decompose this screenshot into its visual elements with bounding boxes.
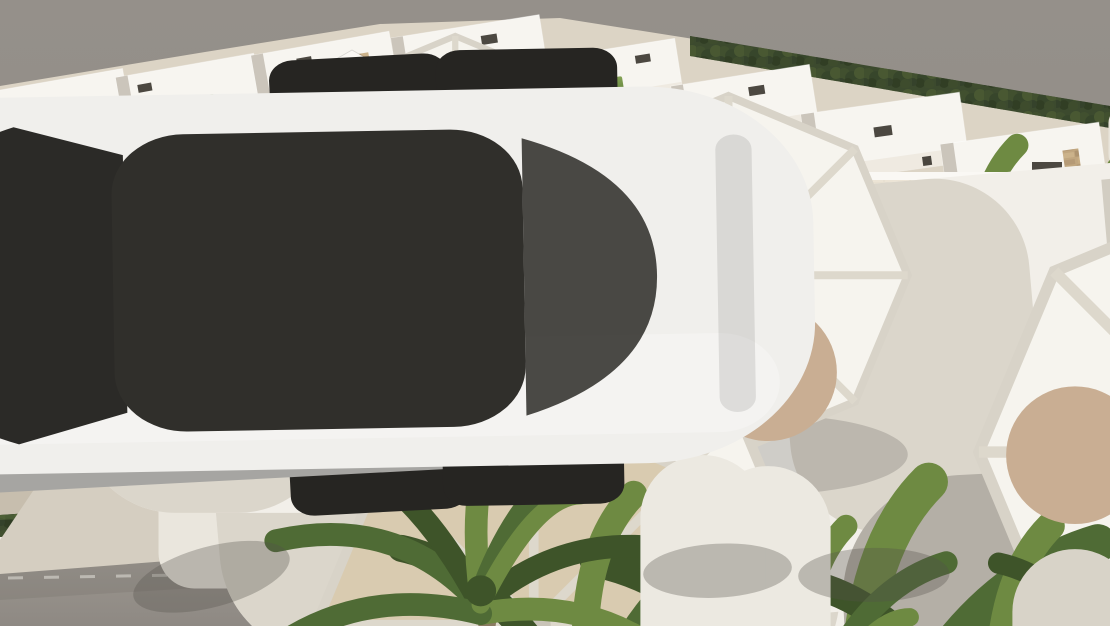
aerial-render-canvas bbox=[0, 0, 1110, 626]
render-figure bbox=[0, 0, 1110, 626]
architectural-render-screenshot bbox=[0, 0, 1110, 626]
